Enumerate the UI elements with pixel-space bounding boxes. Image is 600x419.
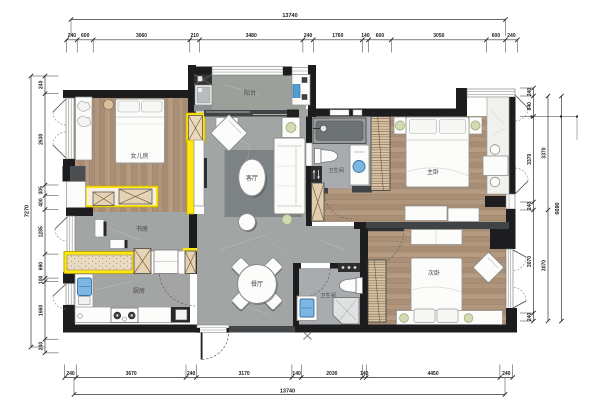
svg-text:140: 140 — [361, 33, 370, 39]
svg-text:厨房: 厨房 — [133, 287, 145, 295]
svg-text:1760: 1760 — [332, 33, 343, 39]
svg-text:次卧: 次卧 — [428, 269, 440, 277]
svg-text:240: 240 — [527, 88, 533, 97]
svg-text:3370: 3370 — [527, 153, 533, 164]
svg-text:客厅: 客厅 — [246, 174, 258, 182]
svg-text:6690: 6690 — [555, 202, 561, 214]
svg-text:7270: 7270 — [25, 205, 31, 217]
svg-text:140: 140 — [360, 371, 369, 377]
svg-text:2030: 2030 — [326, 371, 337, 377]
svg-text:主卧: 主卧 — [427, 168, 439, 176]
svg-text:13740: 13740 — [280, 389, 295, 395]
svg-text:2630: 2630 — [39, 134, 45, 145]
svg-text:13740: 13740 — [282, 13, 297, 19]
svg-text:240: 240 — [39, 342, 45, 351]
svg-text:305: 305 — [39, 186, 45, 195]
svg-text:240: 240 — [304, 33, 313, 39]
svg-text:女儿房: 女儿房 — [130, 152, 148, 160]
svg-text:3070: 3070 — [527, 256, 533, 267]
svg-text:840: 840 — [527, 102, 533, 111]
svg-text:400: 400 — [39, 198, 45, 207]
svg-text:1285: 1285 — [39, 226, 45, 237]
svg-text:3070: 3070 — [542, 260, 548, 271]
svg-text:餐厅: 餐厅 — [251, 280, 263, 288]
svg-text:3370: 3370 — [542, 147, 548, 158]
svg-text:100: 100 — [39, 275, 45, 284]
svg-text:600: 600 — [376, 33, 385, 39]
svg-text:书房: 书房 — [136, 225, 148, 233]
svg-text:阳台: 阳台 — [244, 89, 256, 97]
svg-text:240: 240 — [66, 371, 75, 377]
svg-text:卫生间: 卫生间 — [328, 166, 344, 174]
svg-text:210: 210 — [190, 33, 199, 39]
svg-text:690: 690 — [39, 262, 45, 271]
svg-text:600: 600 — [81, 33, 90, 39]
svg-text:240: 240 — [187, 371, 196, 377]
svg-text:3170: 3170 — [239, 371, 250, 377]
svg-text:3060: 3060 — [136, 33, 147, 39]
svg-text:4450: 4450 — [427, 371, 438, 377]
svg-text:3480: 3480 — [246, 33, 257, 39]
svg-text:1660: 1660 — [39, 305, 45, 316]
svg-text:240: 240 — [39, 80, 45, 89]
svg-text:3670: 3670 — [126, 371, 137, 377]
svg-text:240: 240 — [527, 313, 533, 322]
svg-text:600: 600 — [492, 33, 501, 39]
svg-text:240: 240 — [527, 202, 533, 211]
svg-text:240: 240 — [502, 371, 511, 377]
svg-text:卫生间: 卫生间 — [320, 291, 336, 299]
svg-text:140: 140 — [292, 371, 301, 377]
svg-text:240: 240 — [68, 33, 77, 39]
svg-text:240: 240 — [507, 33, 516, 39]
svg-text:3050: 3050 — [433, 33, 444, 39]
